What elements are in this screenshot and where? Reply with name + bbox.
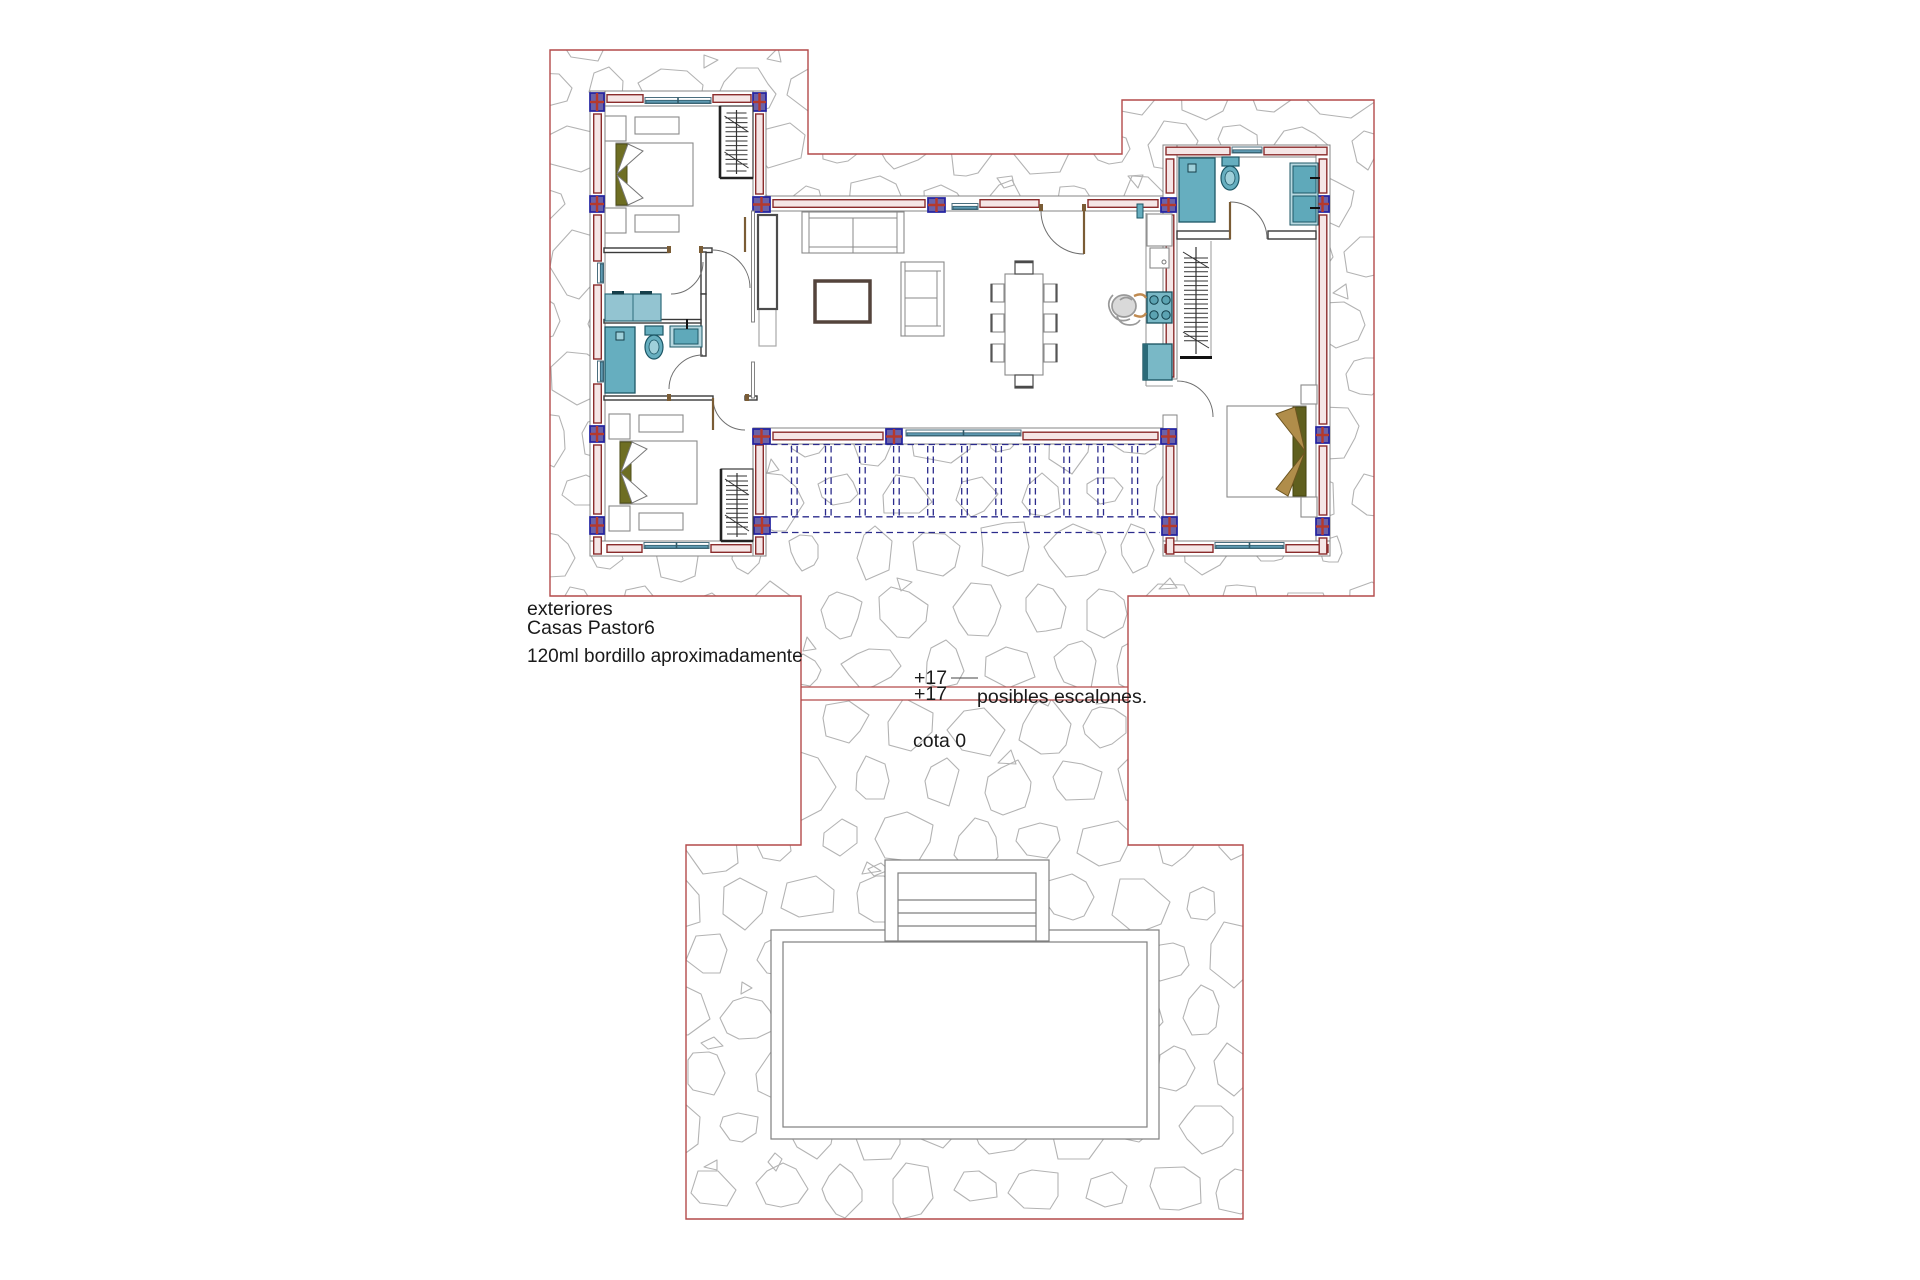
svg-text:posibles escalones.: posibles escalones. [977,686,1147,708]
svg-text:+17: +17 [914,683,947,705]
svg-text:Casas Pastor6: Casas Pastor6 [527,617,655,639]
svg-text:cota 0: cota 0 [913,730,966,752]
svg-text:120ml bordillo aproximadamente: 120ml bordillo aproximadamente [527,646,803,667]
